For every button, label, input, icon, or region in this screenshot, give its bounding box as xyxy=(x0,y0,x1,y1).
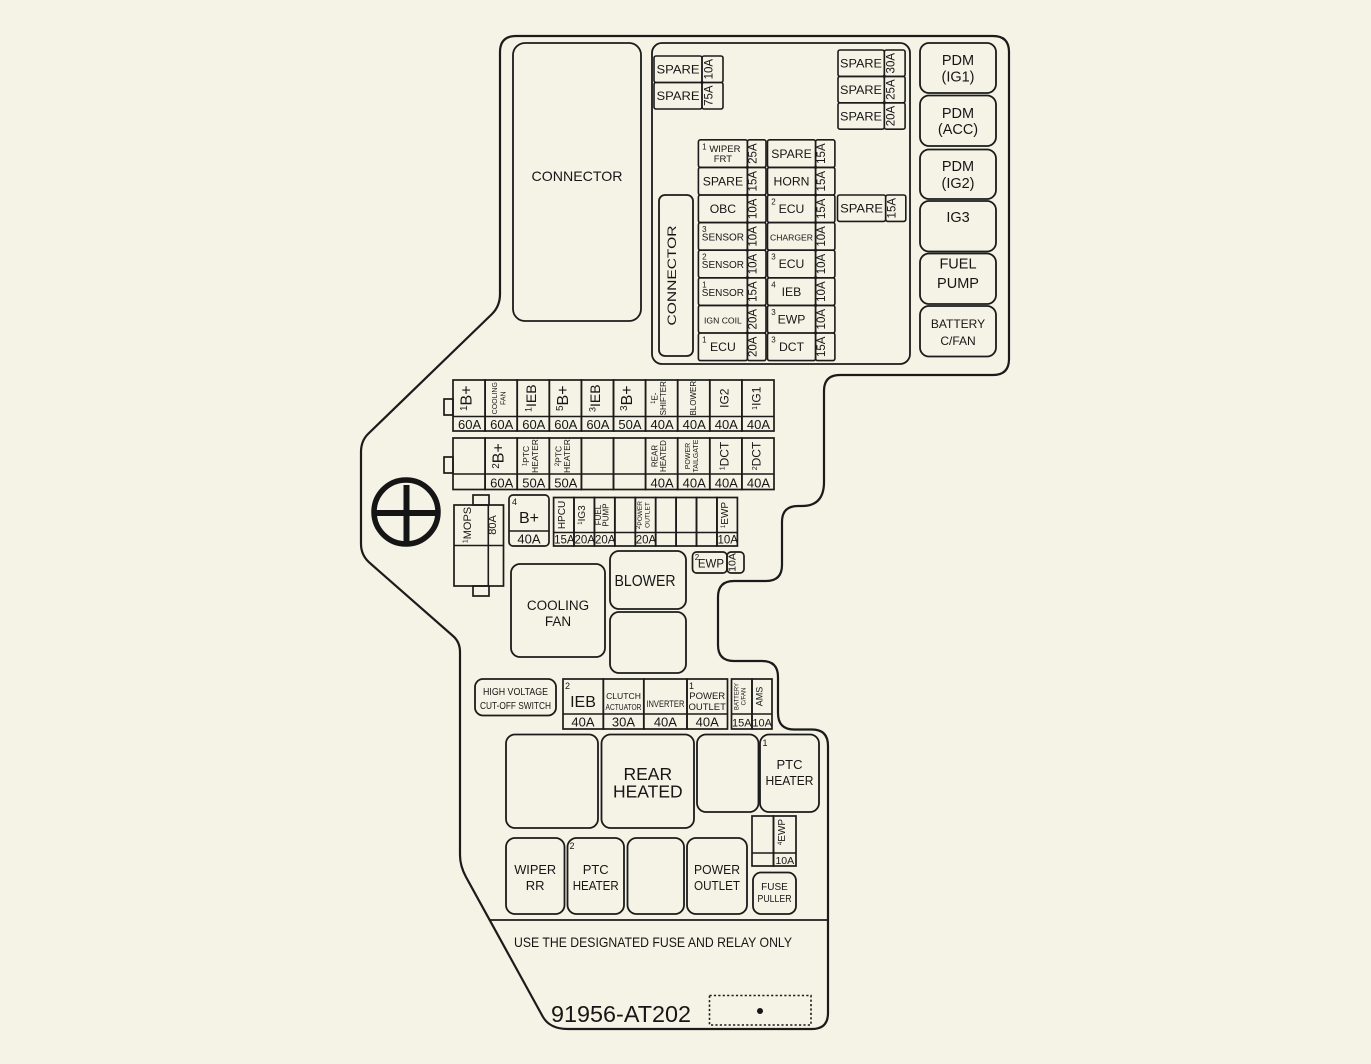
svg-text:2: 2 xyxy=(569,841,574,851)
svg-text:FRT: FRT xyxy=(714,154,732,165)
svg-text:60A: 60A xyxy=(490,417,513,432)
svg-text:50A: 50A xyxy=(554,476,577,491)
svg-text:20A: 20A xyxy=(574,535,595,547)
svg-text:60A: 60A xyxy=(458,417,481,432)
svg-text:WIPER: WIPER xyxy=(514,862,556,877)
svg-text:RR: RR xyxy=(526,878,545,893)
svg-text:FAN: FAN xyxy=(545,614,571,629)
svg-text:60A: 60A xyxy=(586,417,609,432)
svg-text:75A: 75A xyxy=(704,85,716,106)
svg-text:1EWP: 1EWP xyxy=(720,502,731,528)
svg-text:PUMP: PUMP xyxy=(937,276,979,292)
svg-text:1: 1 xyxy=(702,280,707,289)
svg-text:3: 3 xyxy=(771,308,776,317)
svg-text:50A: 50A xyxy=(618,417,641,432)
svg-text:1: 1 xyxy=(702,336,707,345)
svg-text:10A: 10A xyxy=(748,198,760,219)
svg-text:20A: 20A xyxy=(636,535,657,547)
svg-text:DCT: DCT xyxy=(779,340,805,354)
svg-text:20A: 20A xyxy=(595,535,616,547)
svg-text:PDM: PDM xyxy=(942,106,974,122)
svg-text:COOLING: COOLING xyxy=(527,598,589,613)
svg-text:1IEB: 1IEB xyxy=(523,384,539,412)
svg-text:SPARE: SPARE xyxy=(840,109,882,123)
svg-text:15A: 15A xyxy=(554,535,575,547)
svg-text:FUEL: FUEL xyxy=(939,257,976,273)
svg-text:1: 1 xyxy=(689,681,694,691)
svg-text:(IG1): (IG1) xyxy=(941,70,974,86)
svg-text:CUT-OFF SWITCH: CUT-OFF SWITCH xyxy=(480,700,551,712)
svg-text:HIGH VOLTAGE: HIGH VOLTAGE xyxy=(483,686,548,698)
svg-text:10A: 10A xyxy=(748,253,760,274)
svg-text:AMS: AMS xyxy=(755,687,765,707)
svg-text:15A: 15A xyxy=(748,281,760,302)
svg-text:15A: 15A xyxy=(816,143,828,164)
svg-text:10A: 10A xyxy=(816,253,828,274)
svg-text:30A: 30A xyxy=(612,715,635,730)
svg-text:40A: 40A xyxy=(683,417,706,432)
svg-text:SPARE: SPARE xyxy=(703,174,743,188)
svg-text:CLUTCH: CLUTCH xyxy=(606,691,641,701)
svg-text:SPARE: SPARE xyxy=(840,57,882,71)
svg-text:CONNECTOR: CONNECTOR xyxy=(665,225,679,325)
svg-text:4: 4 xyxy=(512,497,517,507)
svg-text:ECU: ECU xyxy=(779,257,805,271)
svg-text:PTC: PTC xyxy=(583,862,609,877)
svg-text:ECU: ECU xyxy=(710,340,736,354)
svg-text:3: 3 xyxy=(702,225,707,234)
svg-text:10A: 10A xyxy=(727,553,739,572)
svg-text:40A: 40A xyxy=(715,476,738,491)
svg-text:BATTERY: BATTERY xyxy=(931,317,985,331)
svg-text:15A: 15A xyxy=(816,198,828,219)
svg-text:15A: 15A xyxy=(887,198,899,219)
svg-text:30A: 30A xyxy=(886,53,898,74)
svg-text:USE THE DESIGNATED FUSE AND RE: USE THE DESIGNATED FUSE AND RELAY ONLY xyxy=(514,934,793,950)
svg-text:80A: 80A xyxy=(487,515,499,535)
svg-text:ACTUATOR: ACTUATOR xyxy=(606,702,642,712)
svg-text:40A: 40A xyxy=(715,417,738,432)
svg-text:OUTLET: OUTLET xyxy=(645,502,652,528)
svg-text:15A: 15A xyxy=(816,171,828,192)
svg-text:POWER: POWER xyxy=(694,862,740,877)
svg-text:15A: 15A xyxy=(748,171,760,192)
svg-text:BATTERY: BATTERY xyxy=(735,683,741,710)
svg-text:PULLER: PULLER xyxy=(758,894,792,905)
svg-text:10A: 10A xyxy=(748,226,760,247)
svg-text:1MOPS: 1MOPS xyxy=(462,507,474,543)
svg-text:40A: 40A xyxy=(683,476,706,491)
svg-text:COOLING: COOLING xyxy=(492,382,499,414)
svg-text:10A: 10A xyxy=(717,535,738,547)
svg-text:2: 2 xyxy=(771,198,776,207)
svg-text:50A: 50A xyxy=(522,476,545,491)
svg-text:1DCT: 1DCT xyxy=(717,441,731,470)
svg-text:FUSE: FUSE xyxy=(761,882,788,893)
svg-text:EWP: EWP xyxy=(778,312,806,326)
svg-text:91956-AT202: 91956-AT202 xyxy=(551,1001,691,1027)
svg-text:40A: 40A xyxy=(696,715,719,730)
svg-text:(ACC): (ACC) xyxy=(938,122,978,138)
svg-text:SPARE: SPARE xyxy=(771,147,811,161)
svg-text:1IG3: 1IG3 xyxy=(577,505,588,525)
svg-text:INVERTER: INVERTER xyxy=(646,699,684,709)
svg-text:SPARE: SPARE xyxy=(657,89,700,103)
svg-text:PUMP: PUMP xyxy=(602,503,611,526)
svg-text:PDM: PDM xyxy=(942,159,974,175)
svg-text:40A: 40A xyxy=(651,417,674,432)
svg-text:40A: 40A xyxy=(571,715,594,730)
svg-text:OUTLET: OUTLET xyxy=(694,878,740,893)
svg-text:ECU: ECU xyxy=(779,202,805,216)
svg-text:1: 1 xyxy=(702,142,707,151)
svg-text:10A: 10A xyxy=(752,718,772,730)
svg-text:10A: 10A xyxy=(775,855,794,867)
svg-text:OUTLET: OUTLET xyxy=(688,702,726,713)
svg-text:TAILGATE: TAILGATE xyxy=(693,439,700,472)
svg-text:HEATED: HEATED xyxy=(613,782,683,802)
svg-text:HEATER: HEATER xyxy=(530,439,540,473)
svg-text:2DCT: 2DCT xyxy=(750,441,764,470)
svg-text:(IG2): (IG2) xyxy=(941,176,974,192)
svg-text:HEATER: HEATER xyxy=(766,773,814,788)
svg-text:FAN: FAN xyxy=(501,391,508,405)
svg-text:40A: 40A xyxy=(651,476,674,491)
svg-text:2POWER: 2POWER xyxy=(636,501,644,529)
svg-text:1: 1 xyxy=(762,738,767,748)
svg-text:C/FAN: C/FAN xyxy=(940,334,975,348)
svg-text:4EWP: 4EWP xyxy=(777,819,788,845)
svg-text:2: 2 xyxy=(565,681,570,691)
svg-text:HEATER: HEATER xyxy=(573,878,619,893)
svg-text:4: 4 xyxy=(771,280,776,289)
svg-text:10A: 10A xyxy=(816,309,828,330)
svg-text:PDM: PDM xyxy=(942,53,974,69)
svg-text:IG2: IG2 xyxy=(717,388,731,408)
svg-text:IGN COIL: IGN COIL xyxy=(704,315,742,325)
svg-text:IEB: IEB xyxy=(570,694,596,711)
svg-text:SENSOR: SENSOR xyxy=(702,233,744,244)
svg-text:40A: 40A xyxy=(654,715,677,730)
svg-text:SHIFTER: SHIFTER xyxy=(659,381,668,415)
svg-text:20A: 20A xyxy=(748,309,760,330)
svg-text:C/FAN: C/FAN xyxy=(742,688,748,706)
svg-text:25A: 25A xyxy=(748,143,760,164)
svg-text:40A: 40A xyxy=(517,532,540,547)
svg-text:SPARE: SPARE xyxy=(840,83,882,97)
svg-text:HPCU: HPCU xyxy=(557,501,568,529)
svg-text:HORN: HORN xyxy=(774,174,810,188)
svg-text:POWER: POWER xyxy=(689,691,725,702)
svg-text:POWER: POWER xyxy=(685,443,692,469)
svg-text:PTC: PTC xyxy=(777,757,803,772)
svg-text:CHARGER: CHARGER xyxy=(770,233,813,243)
svg-text:3IEB: 3IEB xyxy=(587,384,603,412)
svg-text:HEATER: HEATER xyxy=(562,439,572,473)
svg-text:SENSOR: SENSOR xyxy=(702,288,744,299)
svg-text:3: 3 xyxy=(771,253,776,262)
svg-text:60A: 60A xyxy=(522,417,545,432)
svg-text:40A: 40A xyxy=(747,417,770,432)
svg-text:SPARE: SPARE xyxy=(840,202,883,216)
svg-text:40A: 40A xyxy=(747,476,770,491)
svg-text:HEATED: HEATED xyxy=(659,440,668,472)
svg-text:OBC: OBC xyxy=(710,202,737,216)
svg-text:15A: 15A xyxy=(816,336,828,357)
svg-text:EWP: EWP xyxy=(698,559,725,571)
svg-text:10A: 10A xyxy=(704,59,716,80)
svg-text:BLOWER: BLOWER xyxy=(689,381,698,416)
svg-text:IG3: IG3 xyxy=(946,210,969,226)
svg-text:1IG1: 1IG1 xyxy=(750,386,764,410)
svg-text:BLOWER: BLOWER xyxy=(615,573,676,590)
svg-text:IEB: IEB xyxy=(782,285,802,299)
svg-text:10A: 10A xyxy=(816,281,828,302)
svg-text:3: 3 xyxy=(771,336,776,345)
svg-text:20A: 20A xyxy=(748,336,760,357)
svg-text:60A: 60A xyxy=(490,476,513,491)
svg-text:15A: 15A xyxy=(732,718,752,730)
svg-text:2: 2 xyxy=(702,253,707,262)
svg-text:B+: B+ xyxy=(519,510,539,527)
svg-text:20A: 20A xyxy=(886,105,898,126)
svg-text:SPARE: SPARE xyxy=(657,63,700,77)
svg-text:60A: 60A xyxy=(554,417,577,432)
svg-text:CONNECTOR: CONNECTOR xyxy=(532,168,623,184)
svg-text:SENSOR: SENSOR xyxy=(702,260,744,271)
svg-text:10A: 10A xyxy=(816,226,828,247)
svg-text:25A: 25A xyxy=(886,79,898,100)
